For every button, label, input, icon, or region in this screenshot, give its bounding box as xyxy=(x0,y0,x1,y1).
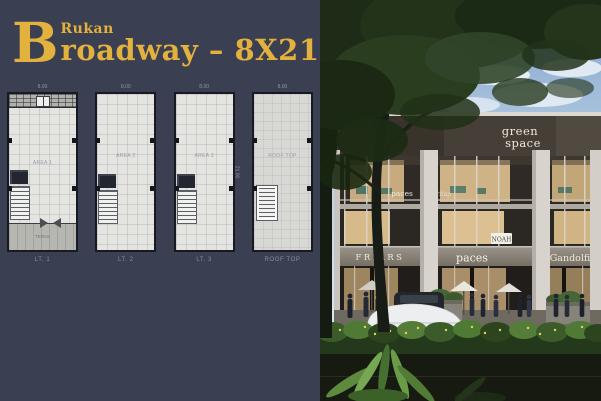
dimension-label: 8.00 xyxy=(252,84,313,90)
decal-noah-text: NOAH xyxy=(492,237,512,244)
floorplan-lt3-drawing: AREA 3 21.00 xyxy=(174,92,235,252)
toilet-room xyxy=(10,170,28,184)
person xyxy=(565,295,570,317)
window-decal-paces: paces xyxy=(391,189,413,198)
building-render-photo: green space xyxy=(320,0,601,401)
title-main: roadway – 8X21 xyxy=(61,37,320,64)
brochure-page: B Rukan roadway – 8X21 8.00 AREA 1 TERAS xyxy=(0,0,601,401)
title-dropcap: B xyxy=(12,22,59,64)
building-photo-svg: green space xyxy=(320,0,601,401)
floorplan-rooftop-drawing: ROOF TOP xyxy=(252,92,313,252)
toilet-room xyxy=(98,174,116,188)
page-title: B Rukan roadway – 8X21 xyxy=(12,22,320,64)
stairs-symbol xyxy=(10,186,30,220)
dimension-label: 8.00 xyxy=(174,84,235,90)
floorplan-lt1: 8.00 AREA 1 TERAS LT. 1 xyxy=(7,92,78,263)
dimension-label: 8.00 xyxy=(95,84,156,90)
floorplan-caption: LT. 2 xyxy=(95,257,156,263)
floorplans-row: 8.00 AREA 1 TERAS LT. 1 8.00 AR xyxy=(0,92,320,263)
person xyxy=(470,293,475,316)
sign-green-space-line2: space xyxy=(505,136,541,150)
room-label: ROOF TOP xyxy=(254,153,311,159)
person xyxy=(364,292,369,317)
double-door-symbol xyxy=(36,96,50,107)
carport-paving xyxy=(9,94,76,108)
brochure-left-panel: B Rukan roadway – 8X21 8.00 AREA 1 TERAS xyxy=(0,0,320,401)
floorplan-caption: LT. 3 xyxy=(174,257,235,263)
floorplan-lt1-drawing: AREA 1 TERAS xyxy=(7,92,78,252)
person xyxy=(481,294,486,317)
person xyxy=(554,294,559,317)
person xyxy=(494,295,499,317)
floorplan-lt2-drawing: AREA 2 xyxy=(95,92,156,252)
stairs-symbol xyxy=(177,190,197,224)
toilet-room xyxy=(177,174,195,188)
flower-shrubs xyxy=(320,320,601,356)
stairs-symbol xyxy=(98,190,118,224)
title-column: Rukan roadway – 8X21 xyxy=(61,22,320,63)
room-label: AREA 2 xyxy=(97,153,154,159)
person xyxy=(348,294,353,318)
room-label: AREA 1 xyxy=(9,160,76,166)
dimension-label: 8.00 xyxy=(7,84,78,90)
dimension-label-side: 21.00 xyxy=(233,166,239,179)
floorplan-lt2: 8.00 AREA 2 LT. 2 xyxy=(95,92,156,263)
floorplan-caption: LT. 1 xyxy=(7,257,78,263)
floorplan-rooftop: 8.00 ROOF TOP ROOF TOP xyxy=(252,92,313,263)
room-label: AREA 3 xyxy=(176,153,233,159)
teras-label: TERAS xyxy=(9,234,76,239)
shop-sign-gandolfi: Gandolfi xyxy=(550,253,591,264)
floorplan-lt3: 8.00 AREA 3 21.00 LT. 3 xyxy=(174,92,235,263)
floorplan-caption: ROOF TOP xyxy=(252,257,313,263)
person xyxy=(518,294,523,317)
person xyxy=(527,295,532,317)
teras-strip: TERAS xyxy=(9,223,76,250)
stairs-symbol xyxy=(257,186,277,220)
shop-sign-paces: paces xyxy=(456,252,488,265)
person xyxy=(580,294,585,317)
